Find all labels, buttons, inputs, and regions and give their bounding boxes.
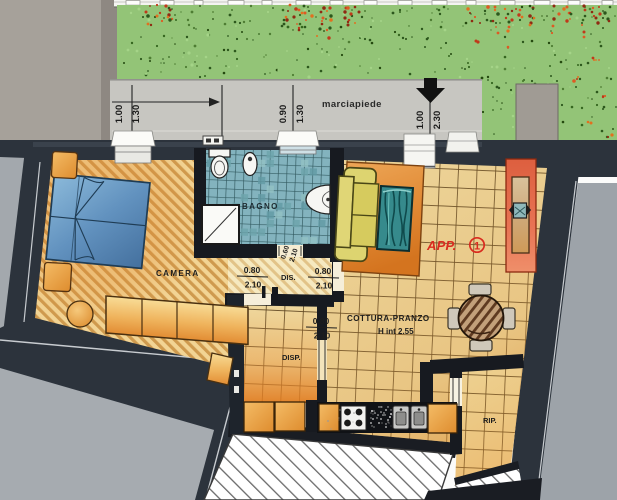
svg-text:2.10: 2.10 bbox=[316, 281, 333, 291]
svg-text:DIS.: DIS. bbox=[281, 273, 296, 282]
svg-text:0.90: 0.90 bbox=[278, 105, 289, 124]
svg-text:1.30: 1.30 bbox=[295, 105, 306, 124]
svg-text:0.80: 0.80 bbox=[315, 266, 332, 276]
svg-text:0.80: 0.80 bbox=[313, 316, 330, 326]
svg-text:BAGNO: BAGNO bbox=[242, 202, 279, 211]
svg-text:COTTURA-PRANZO: COTTURA-PRANZO bbox=[347, 314, 430, 323]
svg-text:DISP.: DISP. bbox=[282, 353, 301, 362]
svg-text:APP.: APP. bbox=[426, 238, 456, 253]
svg-text:marciapiede: marciapiede bbox=[322, 99, 382, 110]
svg-text:RIP.: RIP. bbox=[483, 416, 497, 425]
svg-text:1.30: 1.30 bbox=[131, 105, 142, 124]
svg-text:2.30: 2.30 bbox=[432, 111, 443, 130]
svg-text:1.00: 1.00 bbox=[415, 111, 426, 130]
svg-text:1.00: 1.00 bbox=[114, 105, 125, 124]
svg-text:2.10: 2.10 bbox=[314, 331, 331, 341]
svg-text:CAMERA: CAMERA bbox=[156, 269, 200, 278]
svg-text:H int 2.55: H int 2.55 bbox=[378, 327, 414, 336]
svg-text:1: 1 bbox=[474, 241, 480, 253]
svg-text:0.80: 0.80 bbox=[244, 265, 261, 275]
svg-text:2.10: 2.10 bbox=[245, 280, 262, 290]
